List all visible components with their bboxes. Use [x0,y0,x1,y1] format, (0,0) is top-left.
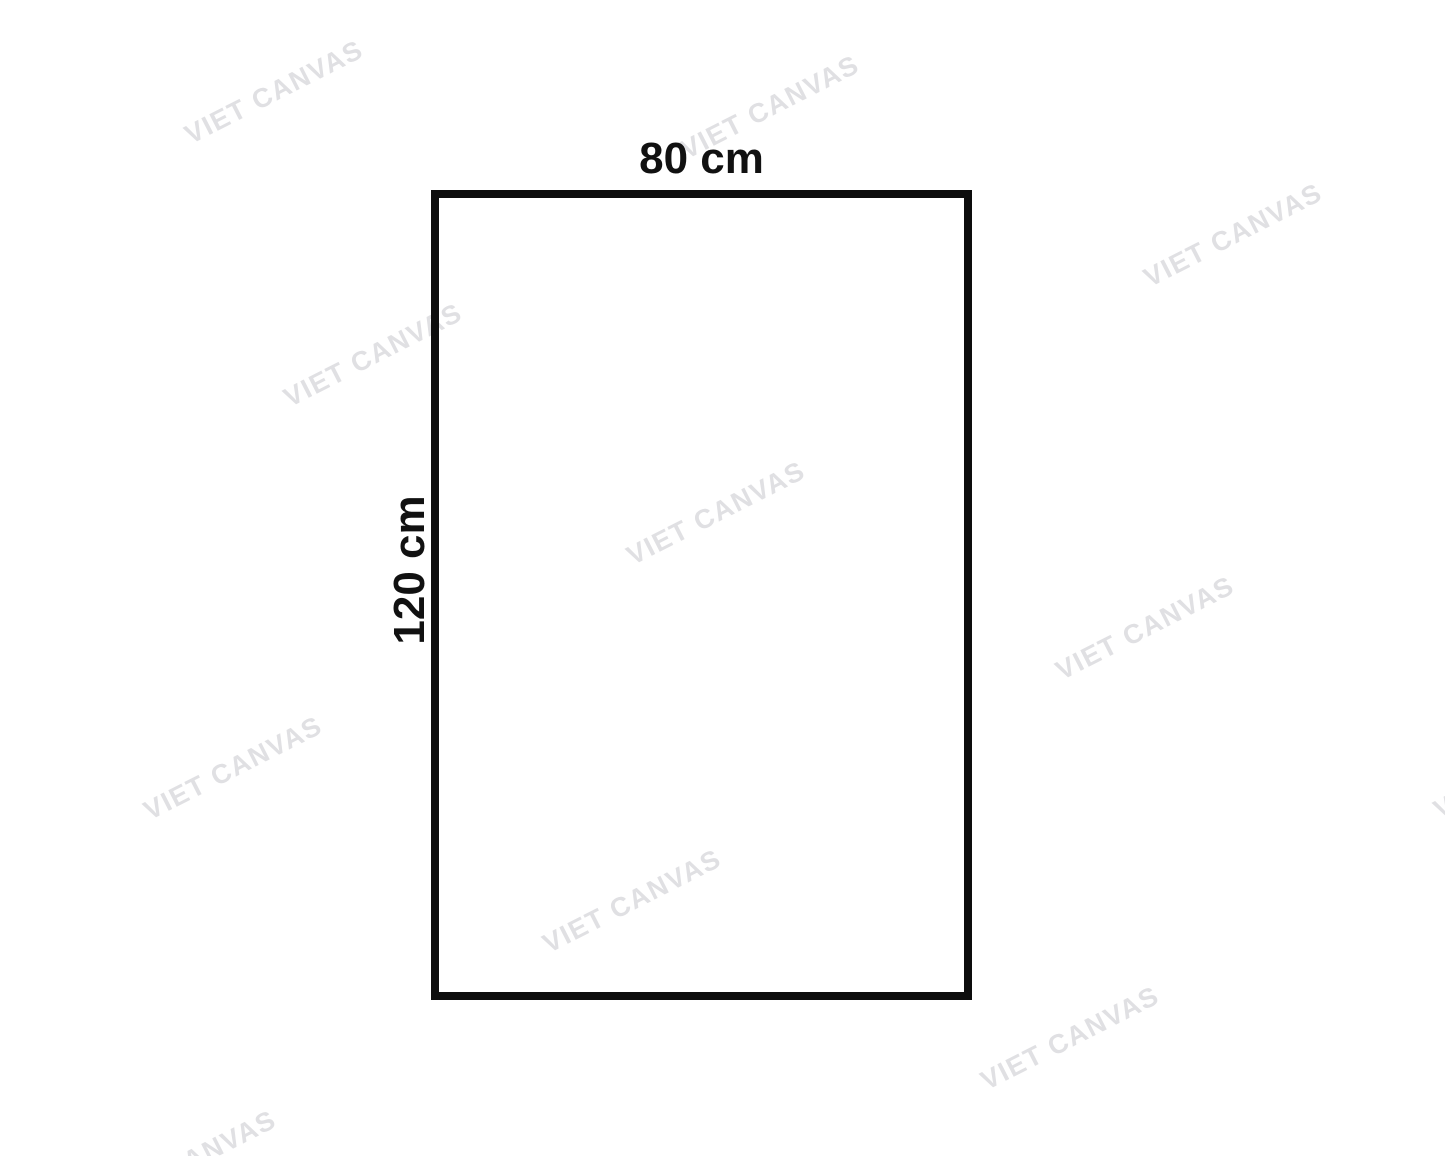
watermark-text: VIET CANVAS [1039,563,1250,693]
watermark-text: VIET CANVAS [964,973,1175,1103]
watermark-text: VIET CANVAS [1417,702,1445,832]
watermark-text: VIET CANVAS [127,703,338,833]
canvas-size-diagram: VIET CANVAS VIET CANVAS VIET CANVAS VIET… [0,0,1445,1156]
watermark-text: VIET CANVAS [1127,170,1338,300]
height-dimension-label: 120 cm [388,480,432,660]
canvas-rectangle [431,190,972,1000]
watermark-text: VIET CANVAS [81,1097,292,1156]
width-dimension-label: 80 cm [431,136,972,182]
watermark-text: VIET CANVAS [168,27,379,157]
